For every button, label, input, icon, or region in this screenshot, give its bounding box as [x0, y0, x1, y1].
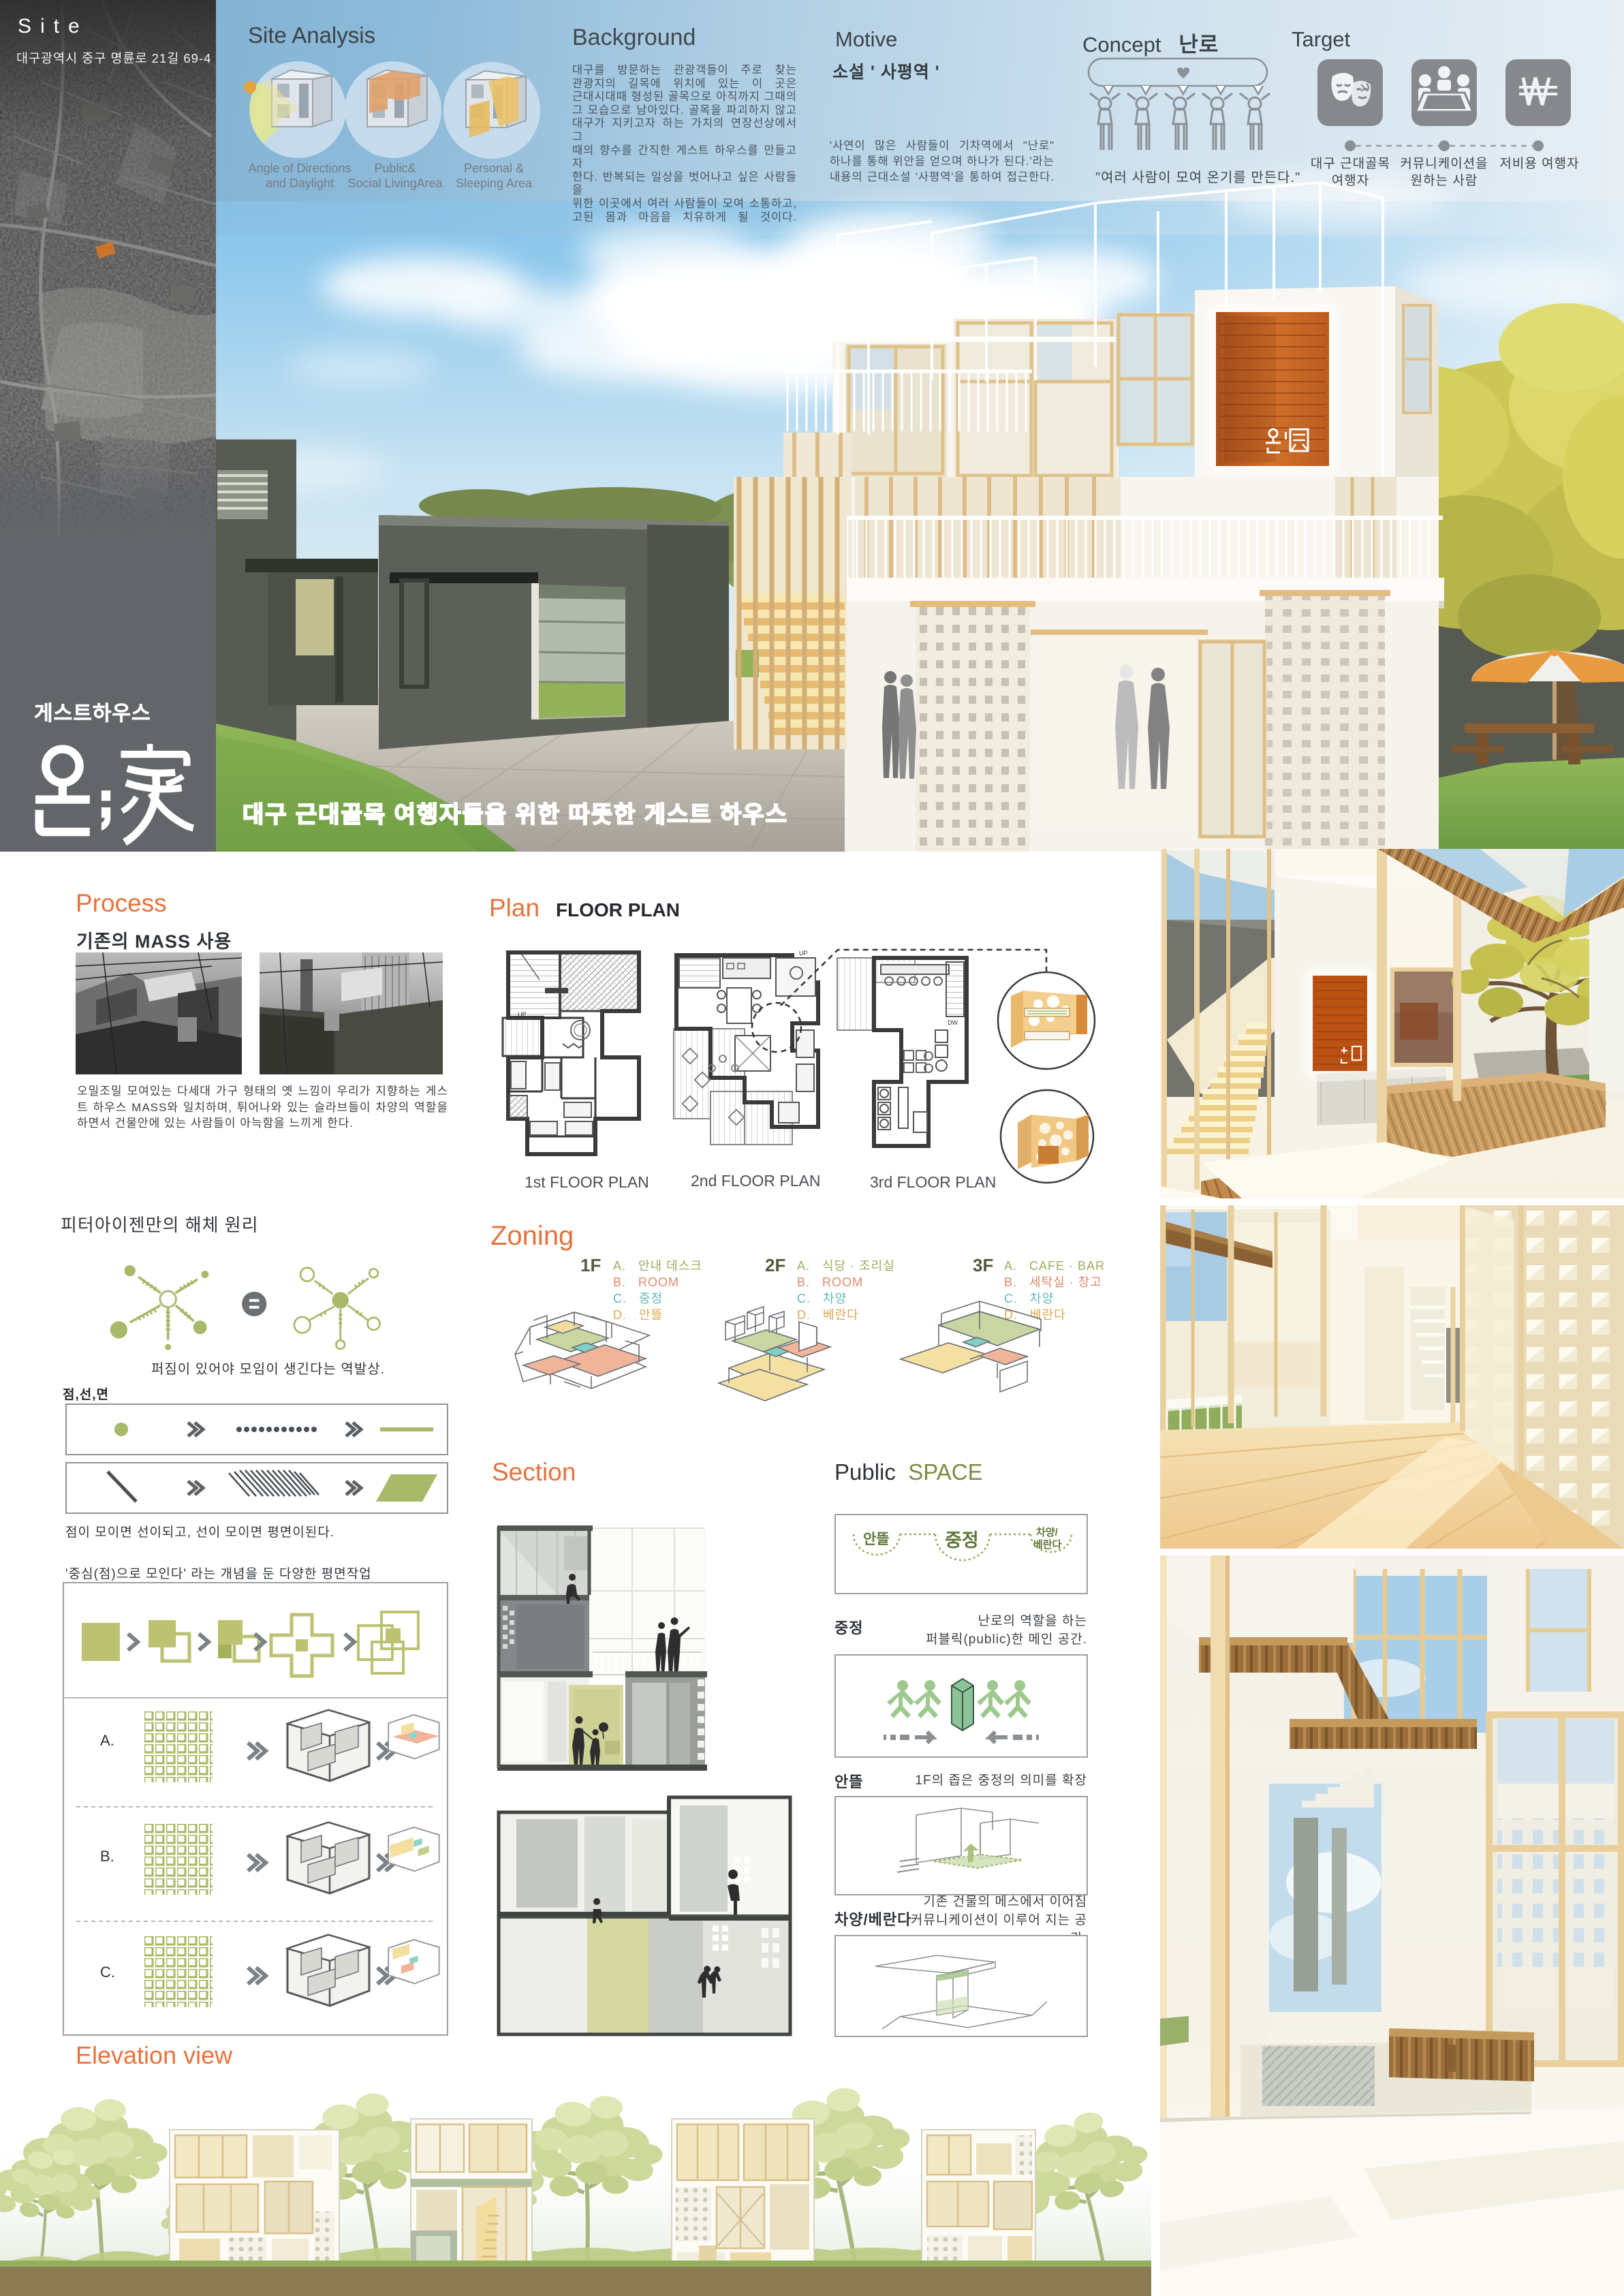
- svg-text:A.: A.: [100, 1732, 114, 1749]
- svg-text:C.: C.: [100, 1964, 115, 1981]
- svg-text:중정: 중정: [945, 1530, 979, 1551]
- svg-text:UP: UP: [518, 1011, 527, 1018]
- svg-text:베란다: 베란다: [1033, 1538, 1062, 1551]
- svg-text:안뜰: 안뜰: [863, 1532, 890, 1547]
- svg-text:B.: B.: [100, 1848, 114, 1865]
- svg-text:차양/: 차양/: [1036, 1527, 1059, 1538]
